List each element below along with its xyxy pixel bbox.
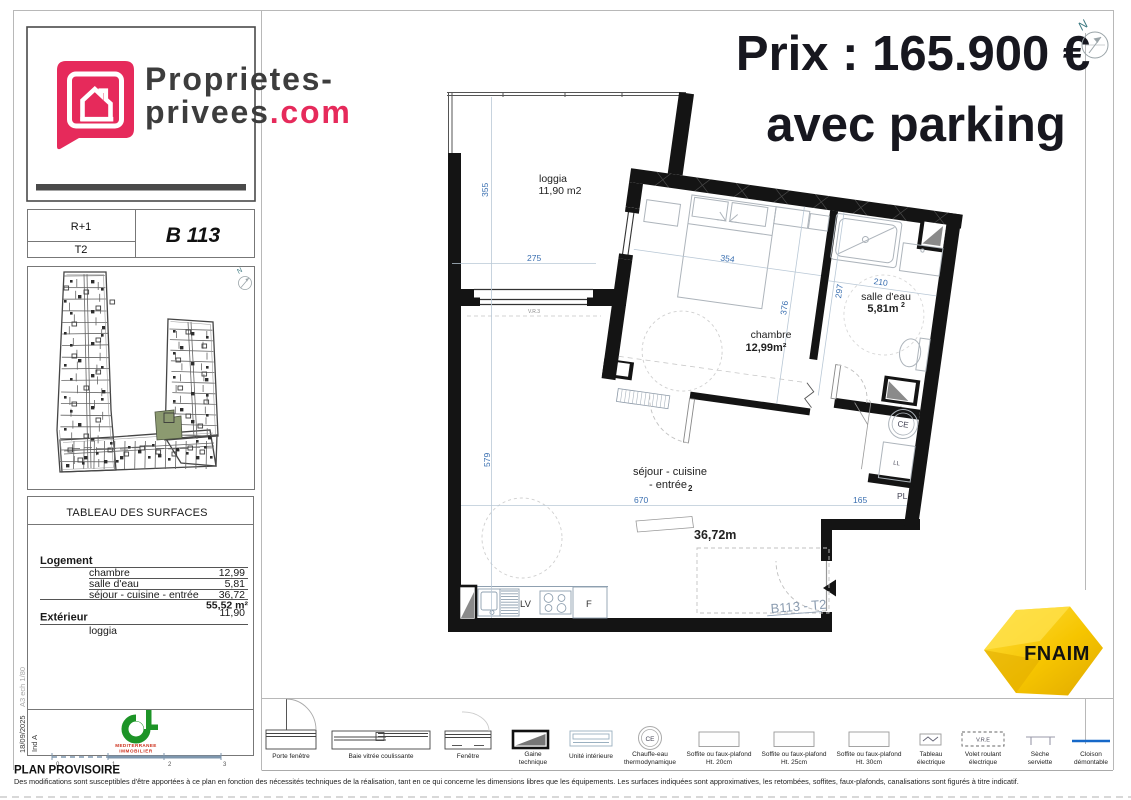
svg-text:Ht. 30cm: Ht. 30cm bbox=[856, 759, 882, 766]
svg-text:F: F bbox=[586, 599, 592, 610]
svg-text:Unité intérieure: Unité intérieure bbox=[569, 753, 613, 760]
svg-text:Logement: Logement bbox=[40, 555, 93, 567]
svg-text:2: 2 bbox=[688, 484, 693, 493]
svg-text:12,99m²: 12,99m² bbox=[746, 342, 787, 354]
svg-text:Ind A: Ind A bbox=[30, 735, 39, 752]
svg-text:PL: PL bbox=[897, 491, 908, 501]
svg-text:loggia: loggia bbox=[89, 625, 117, 637]
svg-text:Soffite ou faux-plafond: Soffite ou faux-plafond bbox=[762, 751, 827, 758]
svg-text:CE: CE bbox=[645, 736, 655, 743]
svg-text:FNAIM: FNAIM bbox=[1024, 643, 1090, 665]
svg-text:Gaine: Gaine bbox=[524, 751, 542, 758]
svg-text:privees.com: privees.com bbox=[145, 94, 352, 130]
svg-text:Chauffe-eau: Chauffe-eau bbox=[632, 751, 668, 758]
svg-text:IMMOBILIER: IMMOBILIER bbox=[119, 749, 153, 754]
svg-text:Ht. 20cm: Ht. 20cm bbox=[706, 759, 732, 766]
svg-text:V.R.3: V.R.3 bbox=[528, 309, 540, 315]
svg-text:serviette: serviette bbox=[1028, 759, 1053, 766]
svg-text:210: 210 bbox=[873, 276, 889, 288]
svg-text:354: 354 bbox=[720, 253, 736, 265]
svg-text:275: 275 bbox=[527, 253, 541, 263]
svg-text:18/09/2025: 18/09/2025 bbox=[18, 715, 27, 753]
svg-text:T2: T2 bbox=[75, 244, 88, 256]
svg-text:Tableau: Tableau bbox=[920, 751, 943, 758]
svg-text:électrique: électrique bbox=[969, 759, 998, 766]
svg-text:- entrée: - entrée bbox=[649, 479, 687, 491]
svg-text:séjour - cuisine: séjour - cuisine bbox=[633, 466, 707, 478]
svg-text:Sèche: Sèche bbox=[1031, 751, 1050, 758]
svg-text:Des modifications sont suscept: Des modifications sont susceptibles d'êt… bbox=[14, 777, 1019, 786]
svg-text:297: 297 bbox=[833, 283, 845, 299]
svg-text:165: 165 bbox=[853, 495, 867, 505]
svg-text:11,90: 11,90 bbox=[220, 607, 246, 619]
svg-text:Soffite ou faux-plafond: Soffite ou faux-plafond bbox=[837, 751, 902, 758]
svg-text:Extérieur: Extérieur bbox=[40, 612, 88, 624]
svg-text:TABLEAU DES SURFACES: TABLEAU DES SURFACES bbox=[66, 507, 207, 519]
svg-text:Volet roulant: Volet roulant bbox=[965, 751, 1001, 758]
svg-text:Proprietes-: Proprietes- bbox=[145, 61, 334, 97]
svg-text:2: 2 bbox=[901, 302, 905, 309]
svg-text:36,72m: 36,72m bbox=[694, 528, 736, 542]
svg-text:A3 ech 1/80: A3 ech 1/80 bbox=[18, 667, 27, 707]
svg-text:376: 376 bbox=[778, 300, 790, 316]
svg-text:670: 670 bbox=[634, 495, 648, 505]
svg-text:V.R.E: V.R.E bbox=[976, 738, 990, 744]
svg-text:Porte fenêtre: Porte fenêtre bbox=[272, 753, 310, 760]
svg-text:Ht. 25cm: Ht. 25cm bbox=[781, 759, 807, 766]
svg-text:MEDITERRANEE: MEDITERRANEE bbox=[115, 743, 157, 748]
svg-text:thermodynamique: thermodynamique bbox=[624, 759, 676, 766]
svg-text:CE: CE bbox=[897, 419, 909, 429]
svg-text:LV: LV bbox=[520, 599, 532, 610]
svg-text:technique: technique bbox=[519, 759, 548, 766]
svg-text:Cloison: Cloison bbox=[1080, 751, 1102, 758]
svg-text:B 113: B 113 bbox=[166, 224, 221, 247]
svg-text:chambre: chambre bbox=[751, 329, 792, 341]
svg-text:Prix : 165.900 €: Prix : 165.900 € bbox=[736, 27, 1090, 81]
svg-text:5,81m: 5,81m bbox=[867, 303, 898, 315]
svg-text:R+1: R+1 bbox=[71, 221, 92, 233]
svg-text:PLAN PROVISOIRE: PLAN PROVISOIRE bbox=[14, 765, 120, 777]
svg-text:355: 355 bbox=[480, 183, 490, 197]
svg-text:loggia: loggia bbox=[539, 173, 567, 185]
svg-text:Fenêtre: Fenêtre bbox=[457, 753, 480, 760]
svg-text:électrique: électrique bbox=[917, 759, 946, 766]
svg-text:Soffite ou faux-plafond: Soffite ou faux-plafond bbox=[687, 751, 752, 758]
svg-text:11,90 m2: 11,90 m2 bbox=[539, 185, 582, 197]
svg-text:avec parking: avec parking bbox=[766, 98, 1066, 152]
svg-text:Baie vitrée coulissante: Baie vitrée coulissante bbox=[348, 753, 413, 760]
svg-text:démontable: démontable bbox=[1074, 759, 1108, 766]
svg-text:579: 579 bbox=[482, 453, 492, 467]
